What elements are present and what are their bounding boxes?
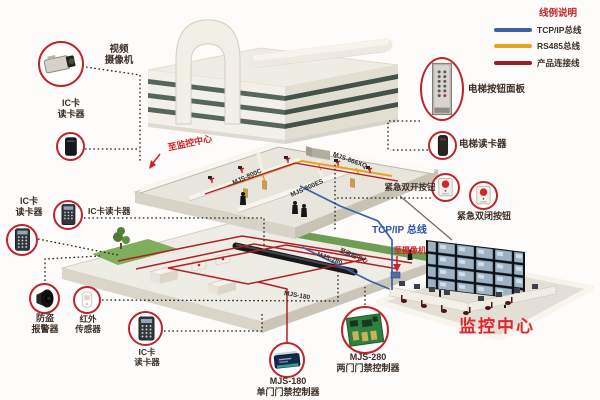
elevator-panel-label: 电梯按钮面板 <box>468 84 544 95</box>
legend: 线例说明 TCP/IP总线 RS485总线 产品连接线 <box>494 5 598 69</box>
ic-reader-bottom-label: IC卡 读卡器 <box>128 347 166 367</box>
burglar-alarm-label: 防盗 报警器 <box>22 313 68 335</box>
elevator-reader-label: 电梯读卡器 <box>459 139 525 150</box>
building <box>148 20 398 144</box>
diagram-canvas: 线例说明 TCP/IP总线 RS485总线 产品连接线 <box>0 0 600 400</box>
to-camera-label: 至摄像机 <box>388 246 432 256</box>
controller-280-icon <box>341 306 389 354</box>
ic-reader-top-icon <box>56 132 85 161</box>
ir-sensor-label: 红外 传感器 <box>68 314 108 334</box>
ic-reader-bottom-icon <box>128 311 163 346</box>
controller-180-icon <box>269 342 305 378</box>
controller-180-label: MJS-180 单门门禁控制器 <box>244 376 332 398</box>
video-camera-label: 视频 摄像机 <box>96 44 142 67</box>
legend-item-product: 产品连接线 <box>494 57 598 69</box>
tcpip-bus-label: TCP/IP 总线 <box>372 225 448 237</box>
elevator-panel-icon <box>420 57 464 121</box>
ic-reader-mid-label: IC卡读卡器 <box>88 206 152 216</box>
rs485-line-swatch <box>494 44 532 48</box>
monitor-center-label: 监控中心 <box>442 312 552 337</box>
product-line-swatch <box>494 61 532 65</box>
controller-280-label: MJS-280 两门门禁控制器 <box>326 352 410 374</box>
video-camera-icon <box>38 41 84 87</box>
emergency-close-icon <box>469 181 498 210</box>
ir-sensor-icon <box>73 286 101 314</box>
burglar-alarm-icon <box>29 283 60 314</box>
ic-reader-top-label: IC卡 读卡器 <box>48 98 94 120</box>
legend-title: 线例说明 <box>494 5 598 19</box>
legend-item-rs485: RS485总线 <box>494 40 598 52</box>
ic-reader-left-label: IC卡 读卡器 <box>6 196 52 218</box>
legend-item-tcpip: TCP/IP总线 <box>494 24 598 36</box>
ic-reader-left-icon <box>6 224 38 256</box>
elevator-reader-icon <box>428 131 457 160</box>
emergency-close-label: 紧急双闭按钮 <box>450 211 518 222</box>
tcpip-line-swatch <box>494 28 532 32</box>
emergency-open-label: 紧急双开按钮 <box>381 182 439 192</box>
ic-reader-mid-icon <box>53 200 83 230</box>
